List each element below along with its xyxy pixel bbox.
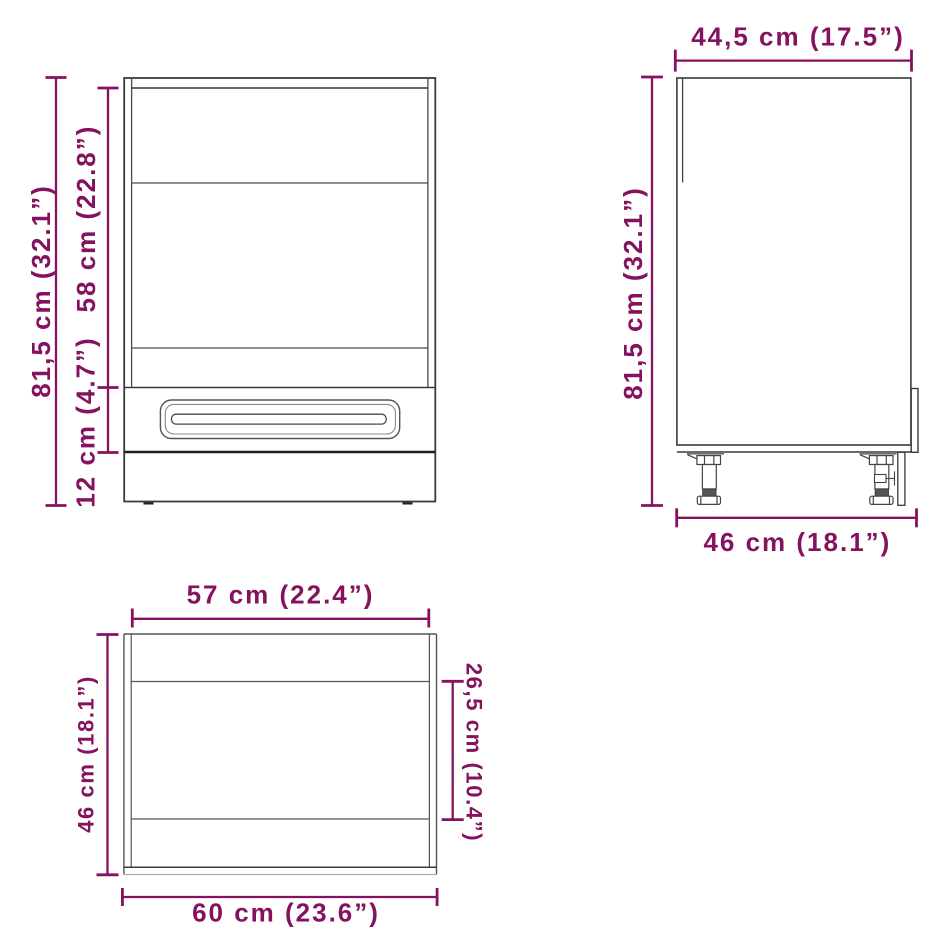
svg-text:46 cm (18.1”): 46 cm (18.1”) [703, 527, 891, 557]
svg-text:81,5 cm (32.1”): 81,5 cm (32.1”) [618, 186, 648, 400]
svg-text:46 cm (18.1”): 46 cm (18.1”) [74, 675, 99, 833]
svg-text:26,5 cm (10.4”): 26,5 cm (10.4”) [462, 663, 487, 842]
svg-text:44,5 cm (17.5”): 44,5 cm (17.5”) [691, 21, 905, 51]
svg-text:81,5 cm (32.1”): 81,5 cm (32.1”) [26, 184, 56, 398]
svg-text:57 cm (22.4”): 57 cm (22.4”) [187, 580, 375, 610]
svg-text:60 cm (23.6”): 60 cm (23.6”) [192, 897, 380, 927]
svg-text:58 cm (22.8”): 58 cm (22.8”) [71, 125, 101, 313]
svg-text:12 cm (4.7”): 12 cm (4.7”) [71, 336, 101, 507]
